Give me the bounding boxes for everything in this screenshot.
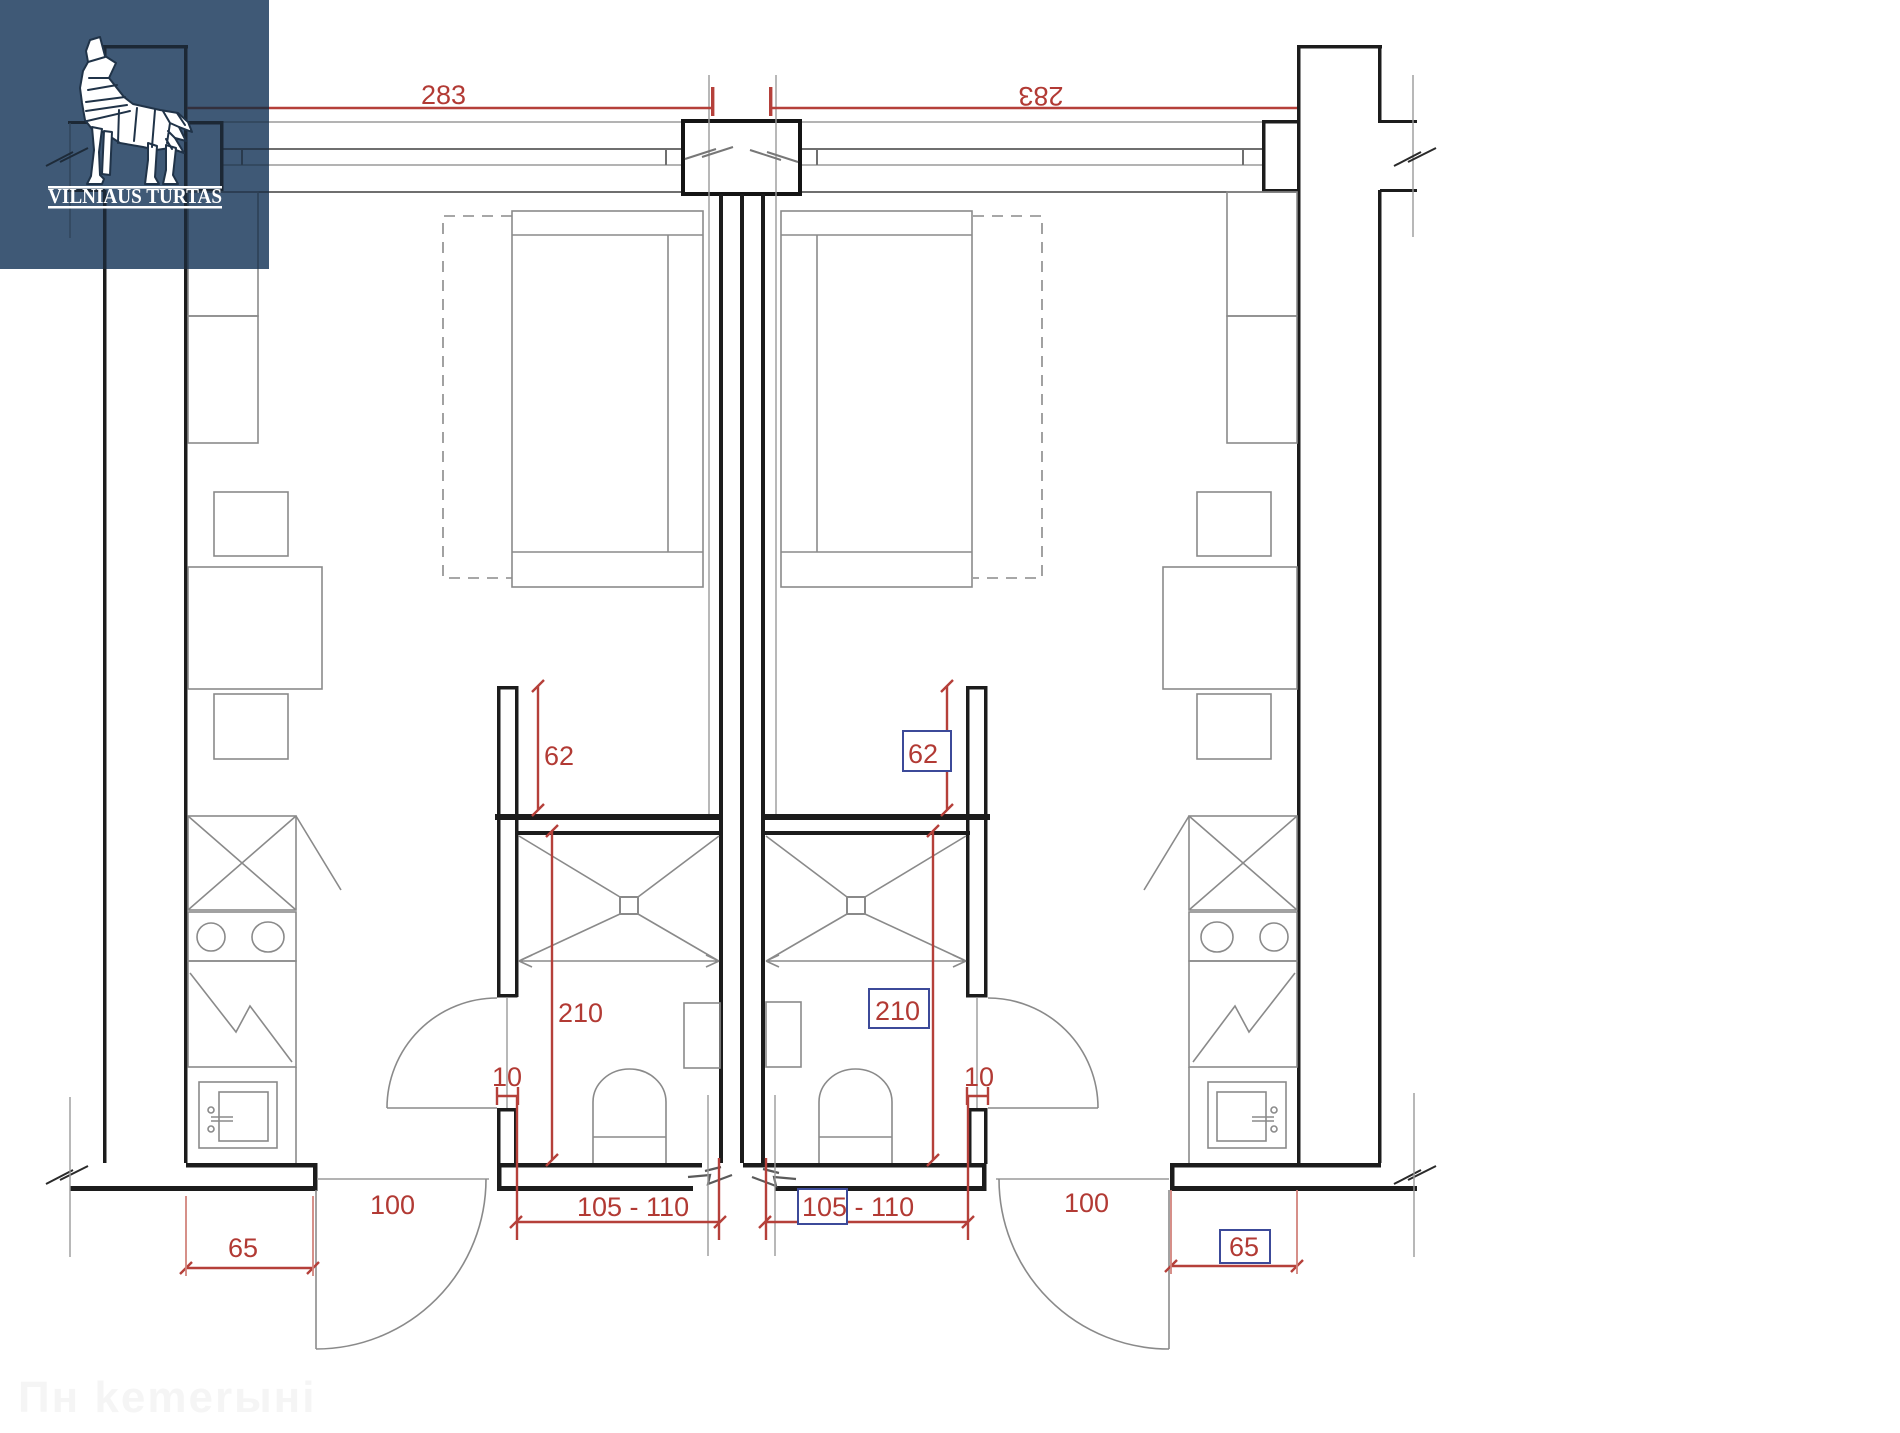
svg-text:283: 283 [1018, 81, 1063, 111]
svg-text:105 - 110: 105 - 110 [802, 1192, 914, 1222]
svg-text:62: 62 [544, 741, 574, 771]
svg-text:65: 65 [1229, 1232, 1259, 1262]
svg-text:65: 65 [228, 1233, 258, 1263]
svg-text:100: 100 [1064, 1188, 1109, 1218]
svg-text:105 - 110: 105 - 110 [577, 1192, 689, 1222]
svg-text:100: 100 [370, 1190, 415, 1220]
svg-text:210: 210 [875, 996, 920, 1026]
svg-text:62: 62 [908, 739, 938, 769]
svg-text:10: 10 [964, 1062, 994, 1092]
svg-text:Пн kеmеrыні: Пн kеmеrыні [18, 1373, 316, 1422]
svg-text:283: 283 [421, 80, 466, 110]
svg-text:210: 210 [558, 998, 603, 1028]
svg-text:VILNIAUS TURTAS: VILNIAUS TURTAS [48, 184, 222, 208]
